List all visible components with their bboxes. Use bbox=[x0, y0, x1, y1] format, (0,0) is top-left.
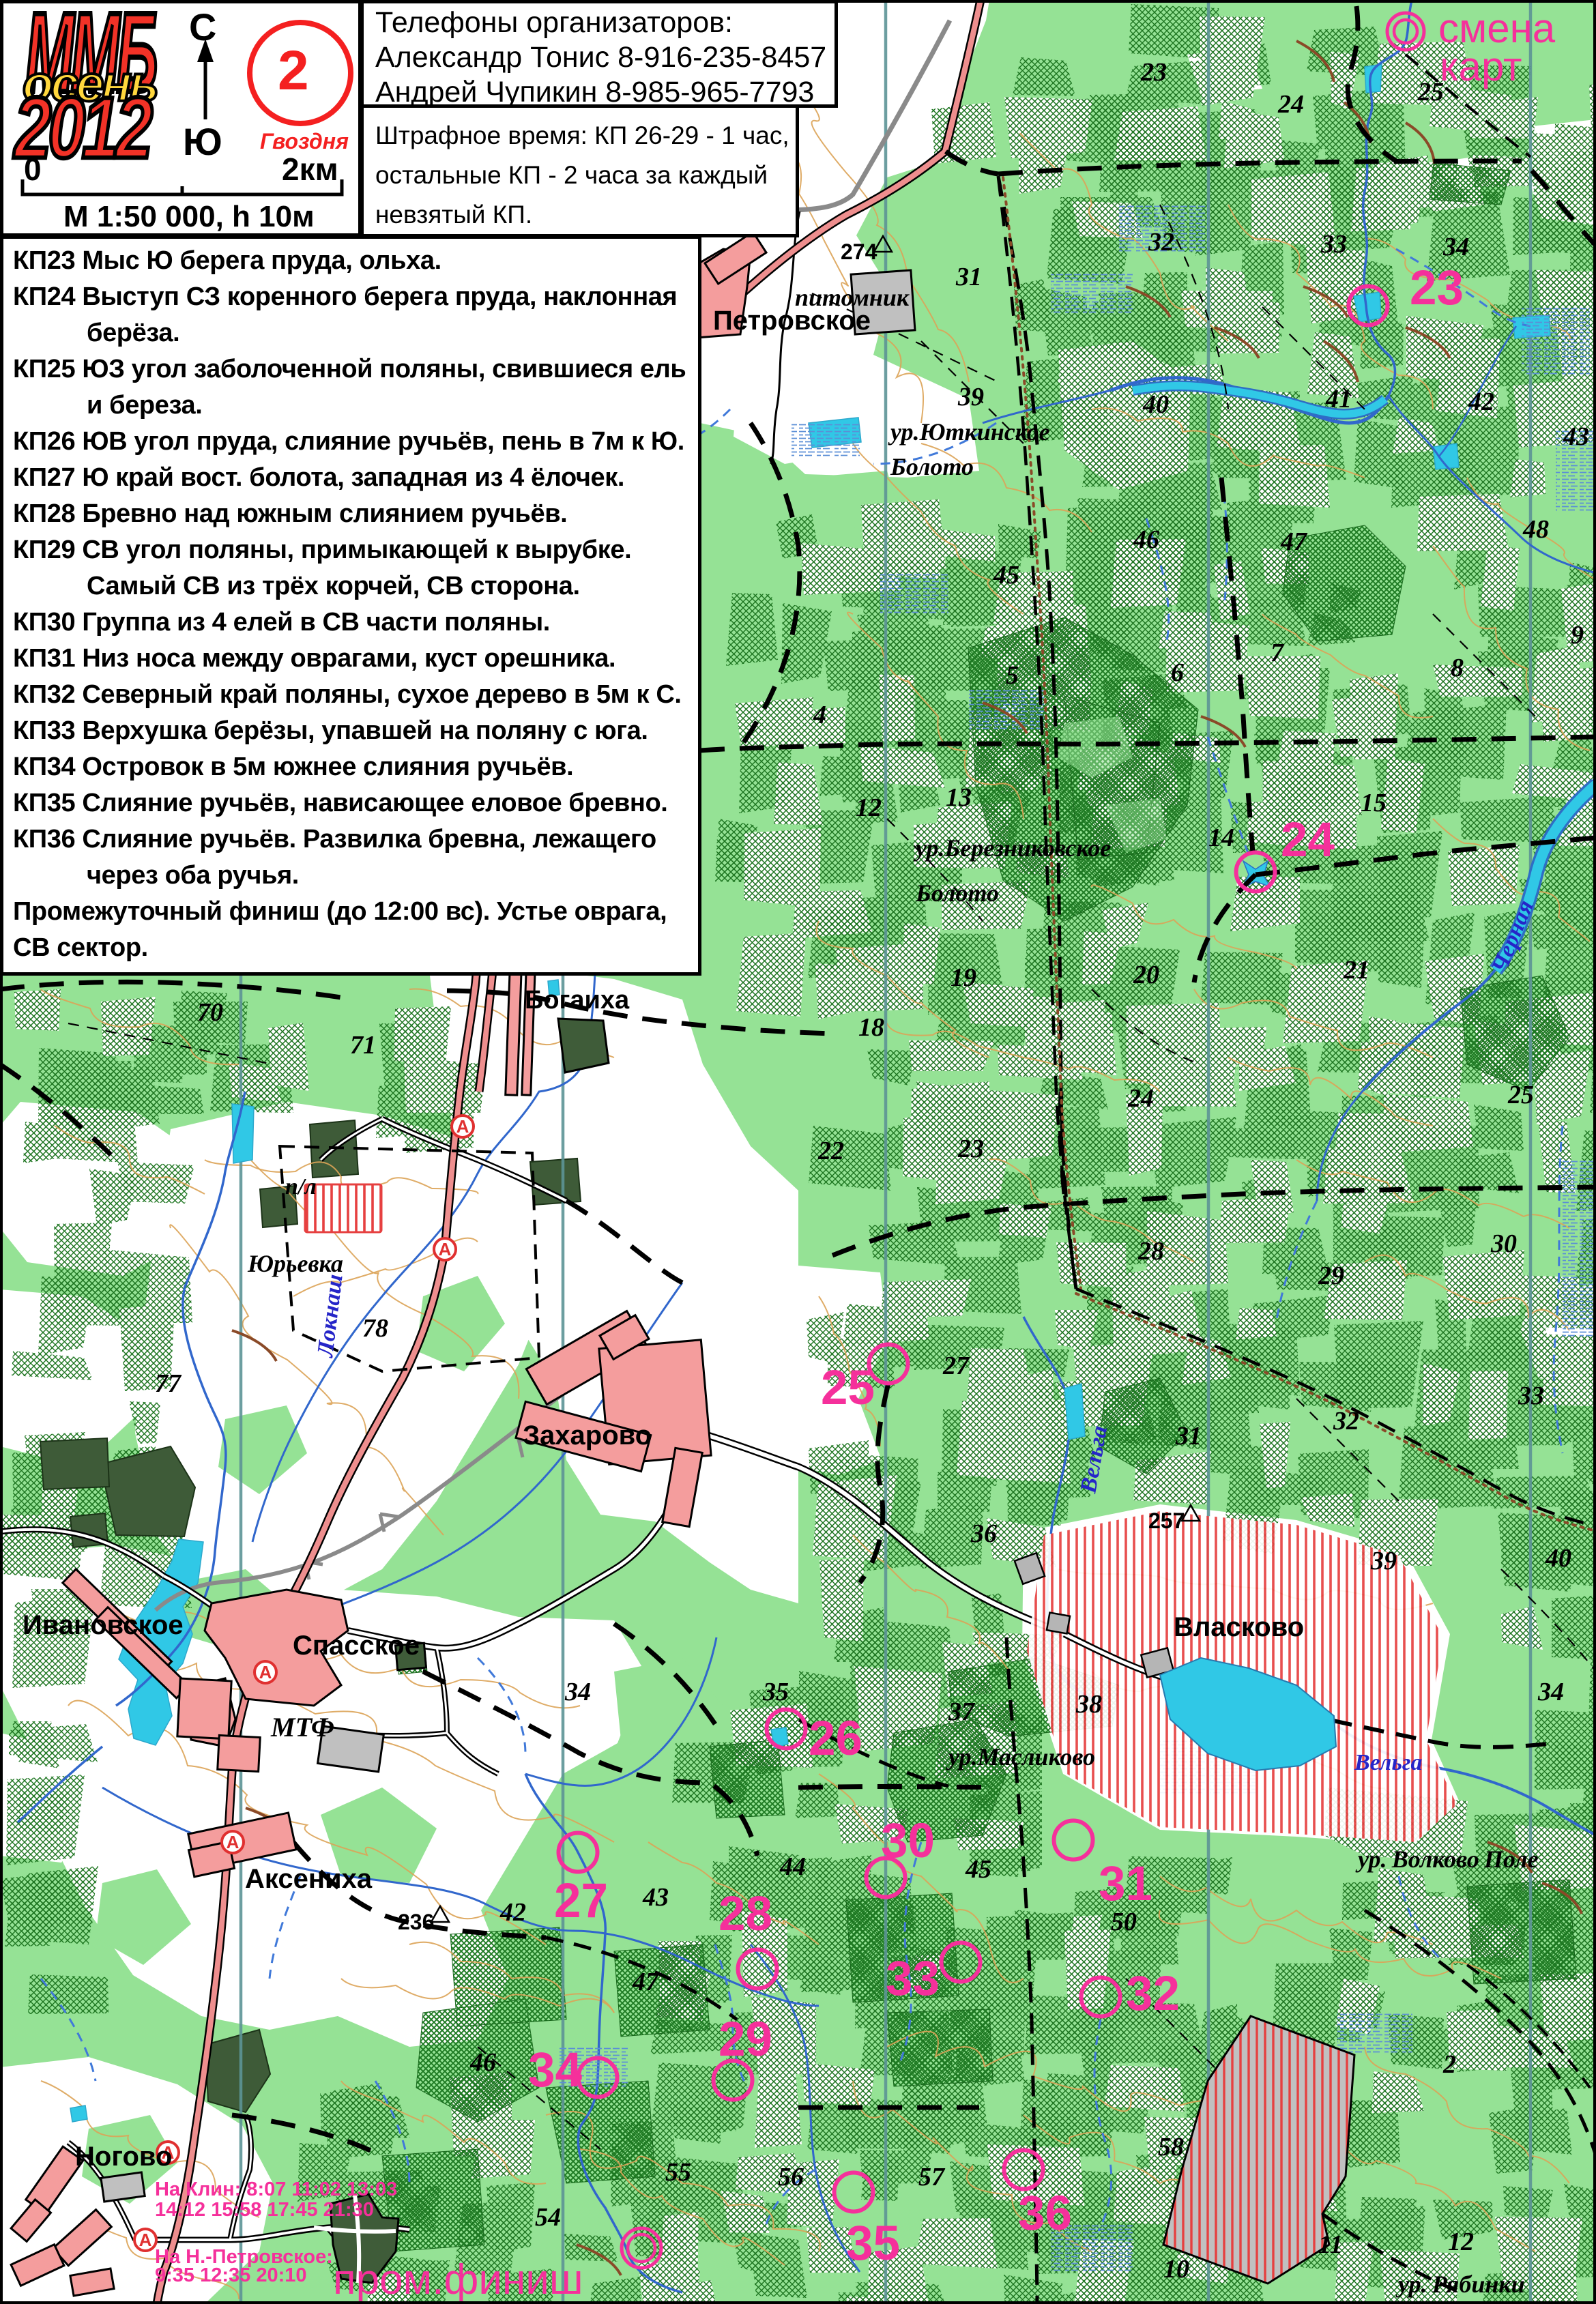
svg-text:47: 47 bbox=[632, 1968, 660, 1996]
svg-text:39: 39 bbox=[957, 383, 984, 411]
svg-text:46: 46 bbox=[469, 2048, 496, 2077]
svg-text:9:35 12:35 20:10: 9:35 12:35 20:10 bbox=[155, 2264, 307, 2286]
svg-text:25: 25 bbox=[821, 1361, 875, 1415]
svg-text:32: 32 bbox=[1126, 1967, 1180, 2021]
svg-text:8: 8 bbox=[1451, 654, 1464, 682]
svg-text:Ивановское: Ивановское bbox=[23, 1610, 184, 1640]
svg-text:карт: карт bbox=[1440, 44, 1522, 89]
svg-text:пром.финиш: пром.финиш bbox=[333, 2256, 583, 2303]
svg-text:31: 31 bbox=[1099, 1857, 1152, 1911]
svg-text:5: 5 bbox=[1006, 661, 1019, 690]
svg-text:34: 34 bbox=[1537, 1678, 1564, 1706]
svg-text:31: 31 bbox=[955, 263, 982, 291]
svg-text:39: 39 bbox=[1370, 1547, 1397, 1575]
svg-text:Вельга: Вельга bbox=[1354, 1750, 1422, 1775]
svg-text:35: 35 bbox=[846, 2217, 900, 2271]
svg-text:15: 15 bbox=[1361, 789, 1387, 817]
svg-text:47: 47 bbox=[1280, 527, 1308, 556]
svg-text:36: 36 bbox=[1018, 2187, 1072, 2241]
svg-text:30: 30 bbox=[1490, 1229, 1517, 1258]
svg-text:ур.Юткинское: ур.Юткинское bbox=[888, 418, 1050, 446]
svg-text:А: А bbox=[259, 1662, 272, 1682]
svg-text:Спасское: Спасское bbox=[293, 1631, 420, 1661]
svg-text:Захарово: Захарово bbox=[523, 1420, 652, 1450]
svg-text:37: 37 bbox=[948, 1697, 976, 1726]
svg-text:19: 19 bbox=[951, 963, 976, 992]
svg-text:46: 46 bbox=[1133, 525, 1159, 554]
svg-text:31: 31 bbox=[1175, 1422, 1202, 1450]
svg-text:4: 4 bbox=[813, 701, 826, 729]
svg-text:ур. Рябинки: ур. Рябинки bbox=[1395, 2271, 1525, 2298]
svg-text:78: 78 bbox=[362, 1314, 388, 1343]
svg-text:56: 56 bbox=[778, 2163, 804, 2191]
svg-text:На Клин: 8:07 11:02 13:03: На Клин: 8:07 11:02 13:03 bbox=[155, 2178, 397, 2200]
svg-text:п/л: п/л bbox=[285, 1174, 317, 1199]
svg-text:48: 48 bbox=[1522, 515, 1549, 544]
svg-text:30: 30 bbox=[881, 1814, 935, 1868]
svg-text:257: 257 bbox=[1148, 1508, 1185, 1533]
svg-text:24: 24 bbox=[1277, 90, 1304, 119]
svg-text:45: 45 bbox=[993, 561, 1019, 589]
svg-text:38: 38 bbox=[1075, 1690, 1102, 1719]
svg-text:7: 7 bbox=[1271, 639, 1285, 667]
svg-text:10: 10 bbox=[1163, 2255, 1189, 2284]
svg-text:57: 57 bbox=[918, 2163, 946, 2191]
svg-text:12: 12 bbox=[856, 793, 882, 822]
svg-text:20: 20 bbox=[1133, 961, 1159, 989]
svg-text:35: 35 bbox=[762, 1678, 789, 1706]
svg-text:Власково: Власково bbox=[1174, 1612, 1304, 1642]
svg-text:33: 33 bbox=[1320, 230, 1347, 259]
svg-text:50: 50 bbox=[1111, 1908, 1137, 1936]
svg-text:А: А bbox=[227, 1832, 240, 1852]
svg-text:32: 32 bbox=[1333, 1407, 1359, 1435]
svg-text:42: 42 bbox=[499, 1898, 526, 1927]
svg-text:54: 54 bbox=[535, 2203, 561, 2232]
svg-text:34: 34 bbox=[1442, 233, 1469, 261]
svg-text:МТФ: МТФ bbox=[270, 1712, 334, 1742]
svg-text:43: 43 bbox=[642, 1883, 669, 1912]
svg-text:43: 43 bbox=[1563, 422, 1589, 451]
svg-text:77: 77 bbox=[155, 1369, 182, 1398]
svg-text:14: 14 bbox=[1208, 823, 1234, 852]
svg-text:29: 29 bbox=[1318, 1262, 1344, 1290]
svg-text:41: 41 bbox=[1325, 385, 1352, 413]
svg-text:21: 21 bbox=[1343, 956, 1369, 985]
svg-text:22: 22 bbox=[817, 1137, 844, 1165]
svg-text:34: 34 bbox=[564, 1678, 591, 1706]
svg-text:28: 28 bbox=[1137, 1237, 1164, 1266]
svg-text:42: 42 bbox=[1468, 388, 1494, 416]
svg-text:27: 27 bbox=[554, 1874, 608, 1928]
svg-text:А: А bbox=[439, 1239, 452, 1259]
svg-text:24: 24 bbox=[1127, 1084, 1154, 1113]
svg-text:23: 23 bbox=[1140, 58, 1167, 87]
svg-text:6: 6 bbox=[1171, 658, 1184, 687]
svg-text:Болото: Болото bbox=[915, 879, 999, 907]
svg-text:Богаиха: Богаиха bbox=[525, 986, 630, 1015]
svg-text:26: 26 bbox=[809, 1712, 862, 1766]
svg-text:ур. Волково Поле: ур. Волково Поле bbox=[1355, 1846, 1539, 1873]
svg-text:А: А bbox=[456, 1116, 469, 1137]
svg-text:71: 71 bbox=[350, 1031, 376, 1060]
svg-text:Аксениха: Аксениха bbox=[245, 1864, 373, 1894]
svg-text:Ногово: Ногово bbox=[75, 2142, 172, 2172]
svg-text:40: 40 bbox=[1545, 1544, 1571, 1573]
svg-text:Болото: Болото bbox=[890, 453, 974, 480]
svg-text:33: 33 bbox=[886, 1952, 940, 2006]
svg-text:274: 274 bbox=[841, 239, 877, 264]
svg-text:32: 32 bbox=[1148, 228, 1174, 257]
svg-text:Юрьевка: Юрьевка bbox=[247, 1250, 343, 1277]
svg-text:29: 29 bbox=[719, 2013, 772, 2067]
svg-text:236: 236 bbox=[398, 1910, 434, 1934]
svg-text:А: А bbox=[139, 2230, 152, 2250]
svg-text:27: 27 bbox=[942, 1352, 970, 1380]
svg-text:24: 24 bbox=[1281, 813, 1335, 867]
svg-text:40: 40 bbox=[1142, 390, 1169, 419]
svg-text:45: 45 bbox=[965, 1855, 991, 1884]
svg-text:9: 9 bbox=[1571, 621, 1584, 650]
svg-text:28: 28 bbox=[719, 1887, 772, 1941]
svg-text:12: 12 bbox=[1448, 2228, 1474, 2256]
svg-text:70: 70 bbox=[197, 998, 223, 1027]
svg-text:23: 23 bbox=[957, 1135, 984, 1163]
svg-text:36: 36 bbox=[970, 1519, 997, 1548]
svg-text:питомник: питомник bbox=[795, 284, 910, 311]
svg-text:ур.Березниковское: ур.Березниковское bbox=[913, 834, 1111, 862]
svg-text:58: 58 bbox=[1158, 2133, 1184, 2161]
svg-text:23: 23 bbox=[1410, 261, 1464, 315]
svg-text:11: 11 bbox=[1318, 2230, 1343, 2259]
svg-text:25: 25 bbox=[1507, 1081, 1534, 1109]
svg-text:13: 13 bbox=[946, 783, 972, 812]
svg-text:18: 18 bbox=[858, 1013, 884, 1042]
svg-text:14:12 15:58 17:45 21:30: 14:12 15:58 17:45 21:30 bbox=[155, 2199, 374, 2221]
svg-text:34: 34 bbox=[528, 2043, 582, 2097]
svg-text:33: 33 bbox=[1518, 1382, 1544, 1410]
svg-text:55: 55 bbox=[665, 2158, 691, 2187]
svg-text:44: 44 bbox=[779, 1852, 806, 1881]
svg-text:ур.Масликово: ур.Масликово bbox=[946, 1743, 1095, 1770]
svg-text:2: 2 bbox=[1442, 2050, 1456, 2079]
